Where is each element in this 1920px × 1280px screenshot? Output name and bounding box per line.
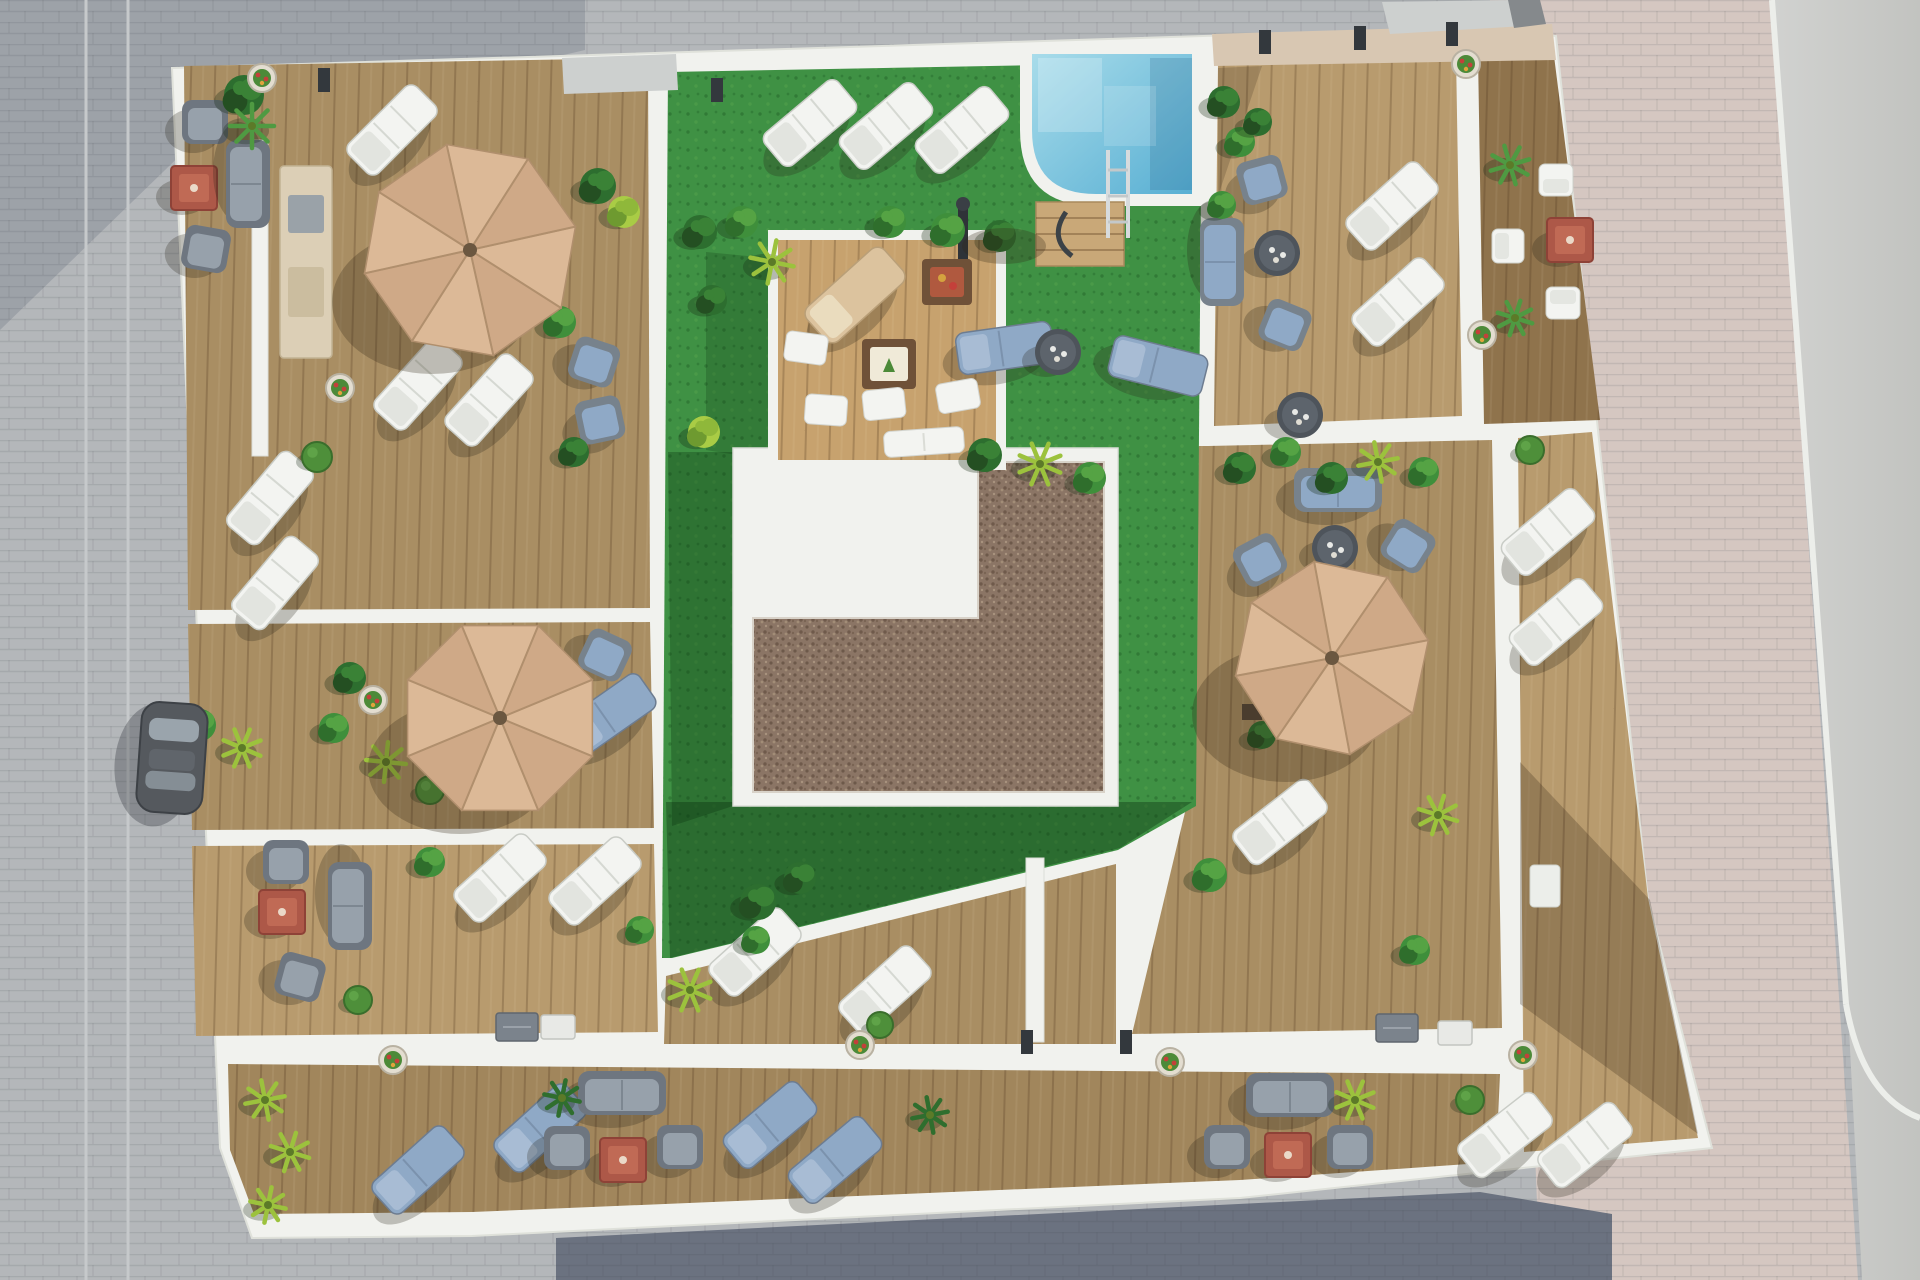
flower-pot: [379, 1046, 407, 1074]
roof-dark-edge: [1508, 0, 1546, 28]
roof-post: [1354, 26, 1366, 50]
umbrella-mid-left: [408, 626, 593, 811]
roof-post: [1120, 1030, 1132, 1054]
platform-table-top: [930, 267, 964, 297]
furniture-boxw: [1438, 1021, 1472, 1045]
flower-pot: [846, 1031, 874, 1059]
roof-post: [1259, 30, 1271, 54]
pot-flower: [256, 73, 261, 78]
pot-flower: [1168, 1065, 1172, 1069]
flower-pot: [1452, 50, 1480, 78]
pot-flower: [1517, 1050, 1522, 1055]
pot-flower: [862, 1044, 867, 1049]
flower-pot: [1156, 1048, 1184, 1076]
armchair-gray-cushion: [1210, 1133, 1244, 1165]
pool-deep-shade: [1150, 58, 1192, 190]
umbrella-pole: [1325, 651, 1339, 665]
car-rear-window: [145, 770, 196, 791]
pot-flower: [1525, 1054, 1530, 1059]
pot-flower: [395, 1059, 400, 1064]
furniture-counter: [280, 166, 332, 358]
pot-flower: [1172, 1061, 1177, 1066]
furniture-boxw: [541, 1015, 575, 1039]
flower-pot: [1468, 321, 1496, 349]
seat-cushion-white: [862, 387, 907, 421]
flower-pot: [326, 374, 354, 402]
armchair-gray-cushion: [186, 232, 225, 269]
table-deco: [278, 908, 286, 916]
armchair-gray-cushion: [188, 108, 222, 140]
furniture-cw: [1539, 164, 1573, 196]
umbrella-pole: [463, 243, 477, 257]
roof-hatch-topleft: [562, 54, 678, 94]
table-deco: [1284, 1151, 1292, 1159]
furniture-cw: [1546, 287, 1580, 319]
table-deco: [190, 184, 198, 192]
cast-shadow: [962, 228, 1046, 264]
pot-flower: [260, 81, 264, 85]
utility-box-white: [541, 1015, 575, 1039]
pot-flower: [371, 703, 375, 707]
counter-sink: [288, 195, 324, 233]
pot-flower: [387, 1055, 392, 1060]
furniture-box: [1376, 1014, 1418, 1042]
flower-pot: [248, 64, 276, 92]
pot-flower: [1464, 67, 1468, 71]
outdoor-shower-head: [956, 197, 970, 211]
pot-flower: [1468, 63, 1473, 68]
utility-box-white: [1438, 1021, 1472, 1045]
pot-flower: [342, 387, 347, 392]
pot-flower: [1476, 330, 1481, 335]
pot-flower: [1521, 1058, 1525, 1062]
armchair-gray-cushion: [550, 1134, 584, 1166]
pot-flower: [338, 391, 342, 395]
pool-shallow-highlight: [1038, 58, 1102, 132]
outdoor-kitchen-counter: [280, 166, 332, 358]
flower-pot: [1509, 1041, 1537, 1069]
furniture-wt: [1530, 865, 1560, 907]
pot-flower: [854, 1040, 859, 1045]
pot-flower: [391, 1063, 395, 1067]
furniture-aw: [783, 330, 829, 366]
car-windshield: [148, 717, 199, 742]
chair-seat: [1550, 290, 1576, 304]
furniture-tpic: [862, 339, 916, 389]
furniture-bench: [883, 426, 965, 458]
armchair-gray-cushion: [269, 848, 303, 880]
furniture-aw: [804, 394, 848, 427]
side-table-white: [1530, 865, 1560, 907]
umbrella-pole: [493, 711, 507, 725]
furniture-aw: [862, 387, 907, 421]
pot-flower: [1480, 338, 1484, 342]
furniture-box: [496, 1013, 538, 1041]
pot-flower: [1484, 334, 1489, 339]
flower-pot: [359, 686, 387, 714]
wall-v5: [1026, 858, 1044, 1042]
pot-flower: [264, 77, 269, 82]
pool-step-notch: [1104, 86, 1156, 146]
chair-seat: [1543, 179, 1569, 193]
pot-flower: [375, 699, 380, 704]
roof-post: [318, 68, 330, 92]
pot-flower: [334, 383, 339, 388]
furniture-tt: [922, 259, 972, 305]
lounger-headrest: [959, 333, 991, 371]
table-deco: [619, 1156, 627, 1164]
chair-seat: [1495, 233, 1509, 259]
armchair-gray-cushion: [663, 1133, 697, 1165]
rooftop-aerial-render: [0, 0, 1920, 1280]
car-roof: [148, 748, 195, 771]
pot-flower: [367, 695, 372, 700]
pot-flower: [1164, 1057, 1169, 1062]
seat-cushion-white: [804, 394, 848, 427]
pot-flower: [858, 1048, 862, 1052]
table-deco: [1566, 236, 1574, 244]
furniture-cw: [1492, 229, 1524, 263]
lawn-shadow-1: [668, 452, 733, 826]
seat-cushion-white: [783, 330, 829, 366]
roof-post: [1021, 1030, 1033, 1054]
roof-post: [711, 78, 723, 102]
render-stage: [0, 0, 1920, 1280]
pot-flower: [1460, 59, 1465, 64]
armchair-gray-cushion: [1333, 1133, 1367, 1165]
roof-post: [1446, 22, 1458, 46]
counter-top: [288, 267, 324, 317]
